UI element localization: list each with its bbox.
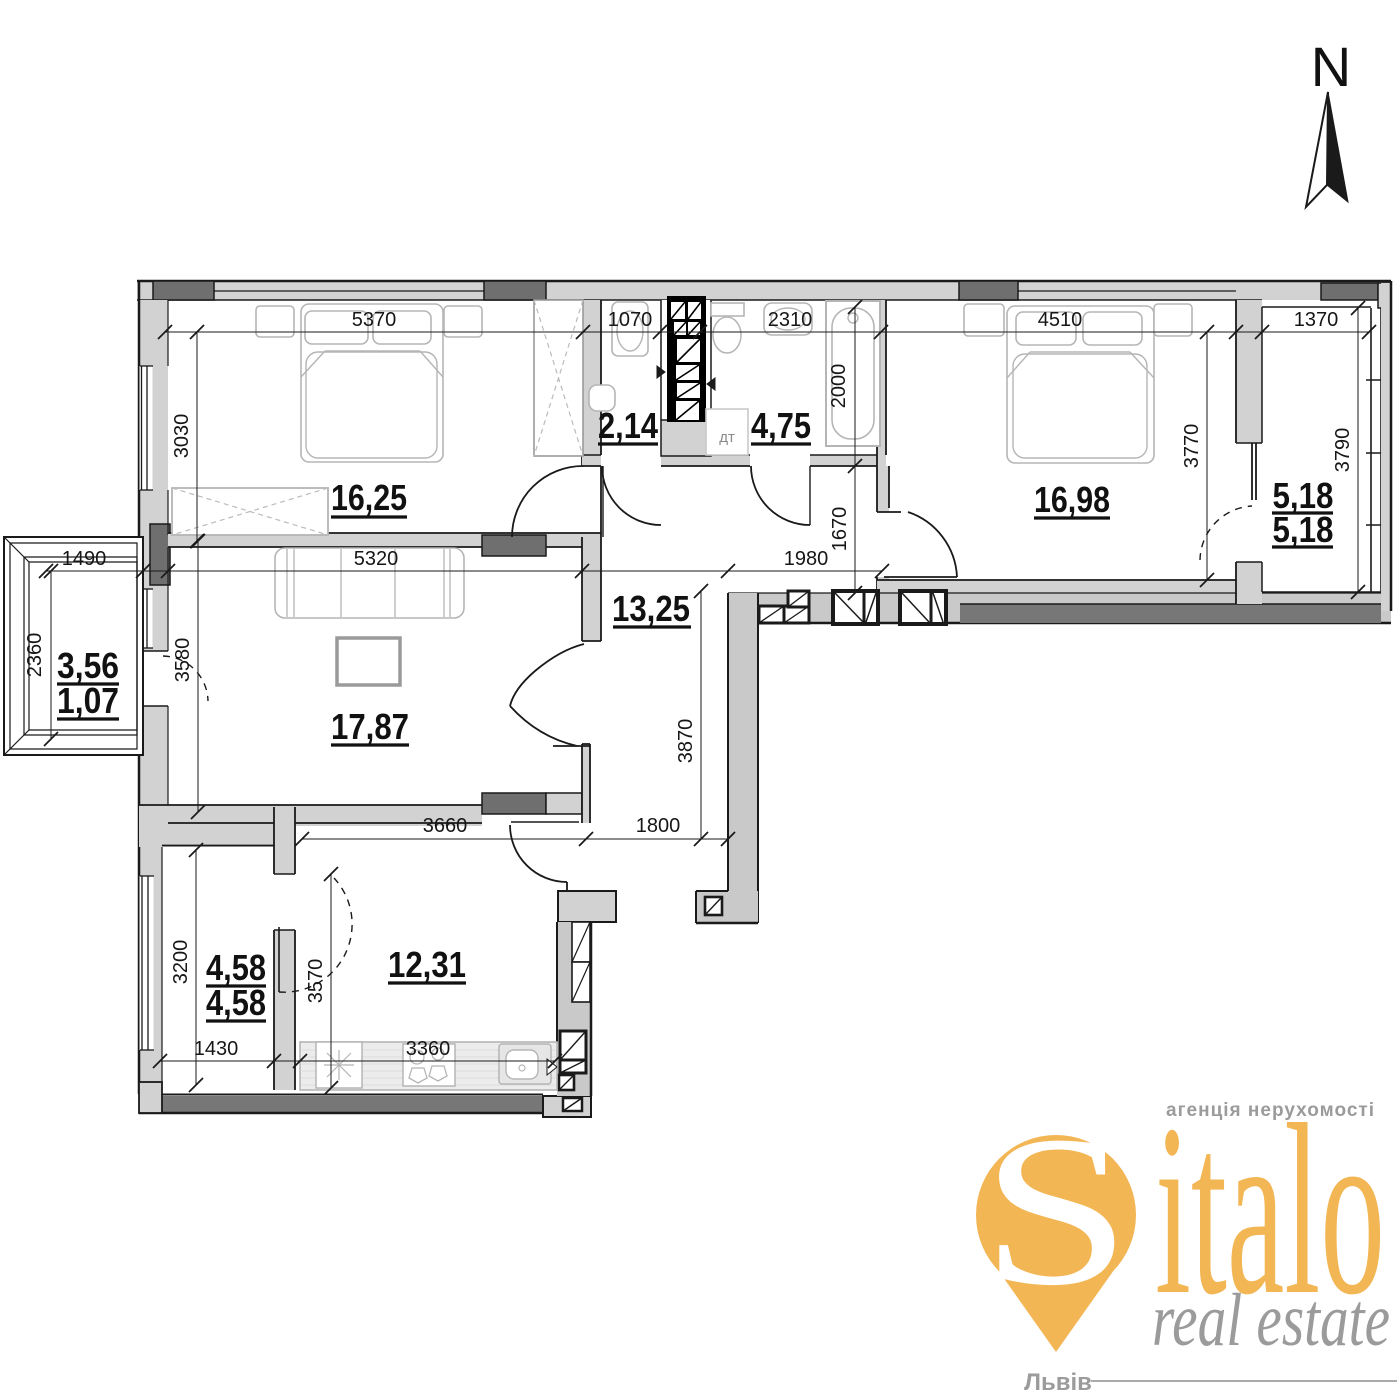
svg-text:3030: 3030	[171, 414, 193, 459]
svg-text:13,25: 13,25	[612, 588, 690, 629]
svg-text:1800: 1800	[636, 815, 681, 837]
svg-text:3790: 3790	[1332, 428, 1354, 473]
svg-text:1430: 1430	[194, 1038, 239, 1060]
svg-text:5,18: 5,18	[1273, 509, 1334, 550]
svg-text:5320: 5320	[354, 548, 399, 570]
svg-text:12,31: 12,31	[388, 944, 466, 985]
svg-text:3770: 3770	[1181, 424, 1203, 469]
svg-text:1980: 1980	[784, 548, 829, 570]
svg-text:1370: 1370	[1294, 309, 1339, 331]
svg-text:1,07: 1,07	[57, 680, 119, 721]
svg-text:2000: 2000	[828, 364, 850, 409]
svg-text:5370: 5370	[352, 309, 397, 331]
svg-text:16,98: 16,98	[1034, 479, 1110, 520]
svg-text:дт: дт	[719, 429, 735, 446]
svg-text:3660: 3660	[423, 815, 468, 837]
svg-text:2310: 2310	[768, 309, 813, 331]
svg-text:16,25: 16,25	[331, 477, 407, 518]
svg-text:3870: 3870	[675, 719, 697, 764]
svg-text:1070: 1070	[608, 309, 653, 331]
svg-text:4510: 4510	[1038, 309, 1083, 331]
svg-text:real estate: real estate	[1152, 1279, 1390, 1362]
svg-text:2360: 2360	[24, 633, 46, 678]
svg-text:4,75: 4,75	[751, 405, 811, 446]
svg-text:S: S	[981, 1091, 1131, 1330]
svg-text:3570: 3570	[305, 959, 327, 1004]
svg-text:3200: 3200	[170, 940, 192, 985]
svg-text:17,87: 17,87	[331, 706, 409, 747]
svg-text:N: N	[1311, 35, 1351, 98]
svg-text:Львів: Львів	[1024, 1369, 1092, 1396]
svg-text:1670: 1670	[829, 507, 851, 552]
svg-text:1490: 1490	[62, 548, 107, 570]
svg-text:3360: 3360	[406, 1038, 451, 1060]
svg-text:2,14: 2,14	[598, 405, 658, 446]
svg-text:3580: 3580	[172, 638, 194, 683]
svg-text:4,58: 4,58	[206, 982, 266, 1023]
